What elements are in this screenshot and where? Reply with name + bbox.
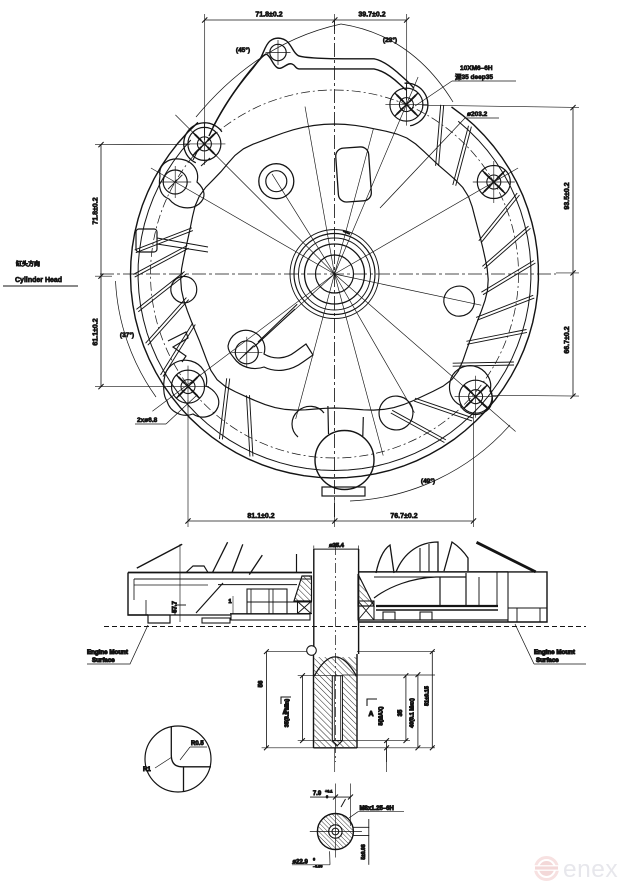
- svg-text:56: 56: [259, 680, 265, 687]
- svg-text:7.9: 7.9: [313, 791, 322, 797]
- svg-text:35: 35: [398, 709, 404, 716]
- svg-text:R1: R1: [143, 767, 151, 773]
- svg-text:51±0.15: 51±0.15: [425, 686, 431, 706]
- svg-text:(45°): (45°): [236, 46, 250, 54]
- svg-text:76.7±0.2: 76.7±0.2: [390, 513, 417, 520]
- svg-text:0: 0: [313, 858, 315, 862]
- svg-text:A: A: [368, 711, 373, 718]
- svg-text:39.7±0.2: 39.7±0.2: [358, 12, 385, 19]
- svg-text:(23°): (23°): [383, 36, 397, 44]
- svg-text:R0.5: R0.5: [191, 741, 204, 747]
- svg-text:深35 deep35: 深35 deep35: [455, 72, 493, 81]
- svg-text:57.7: 57.7: [173, 601, 179, 613]
- svg-text:71.8±0.2: 71.8±0.2: [93, 197, 100, 224]
- svg-text:缸头方向: 缸头方向: [16, 260, 40, 268]
- svg-text:81.1±0.2: 81.1±0.2: [247, 513, 274, 520]
- svg-text:Surface: Surface: [92, 657, 115, 664]
- svg-text:ø25.4: ø25.4: [329, 543, 345, 549]
- svg-text:66.7±0.2: 66.7±0.2: [564, 326, 571, 353]
- svg-text:40(0.1 Max): 40(0.1 Max): [410, 698, 416, 728]
- svg-text:enex: enex: [563, 856, 618, 883]
- svg-text:Engine Mount: Engine Mount: [87, 649, 128, 656]
- svg-text:71.8±0.2: 71.8±0.2: [255, 12, 282, 19]
- svg-text:10XM6–6H: 10XM6–6H: [460, 65, 493, 72]
- svg-text:M8x1.25–6H: M8x1.25–6H: [360, 806, 394, 812]
- svg-text:ø203.2: ø203.2: [467, 111, 488, 118]
- svg-text:Engine Mount: Engine Mount: [534, 649, 575, 656]
- svg-text:Cylinder Head: Cylinder Head: [15, 277, 62, 284]
- svg-text:93.5±0.2: 93.5±0.2: [564, 182, 571, 209]
- svg-text:(37°): (37°): [120, 331, 134, 339]
- svg-text:0: 0: [326, 795, 328, 799]
- svg-text:(49°): (49°): [421, 477, 435, 485]
- svg-text:61.1±0.2: 61.1±0.2: [93, 318, 100, 345]
- svg-text:A: A: [282, 709, 287, 716]
- svg-text:5(MAX): 5(MAX): [379, 706, 385, 725]
- svg-text:+0.1: +0.1: [325, 790, 333, 794]
- svg-text:5±0.08: 5±0.08: [361, 844, 367, 859]
- svg-text:1: 1: [228, 599, 231, 605]
- svg-text:Surface: Surface: [536, 657, 559, 664]
- svg-text:2xø6.8: 2xø6.8: [137, 417, 158, 424]
